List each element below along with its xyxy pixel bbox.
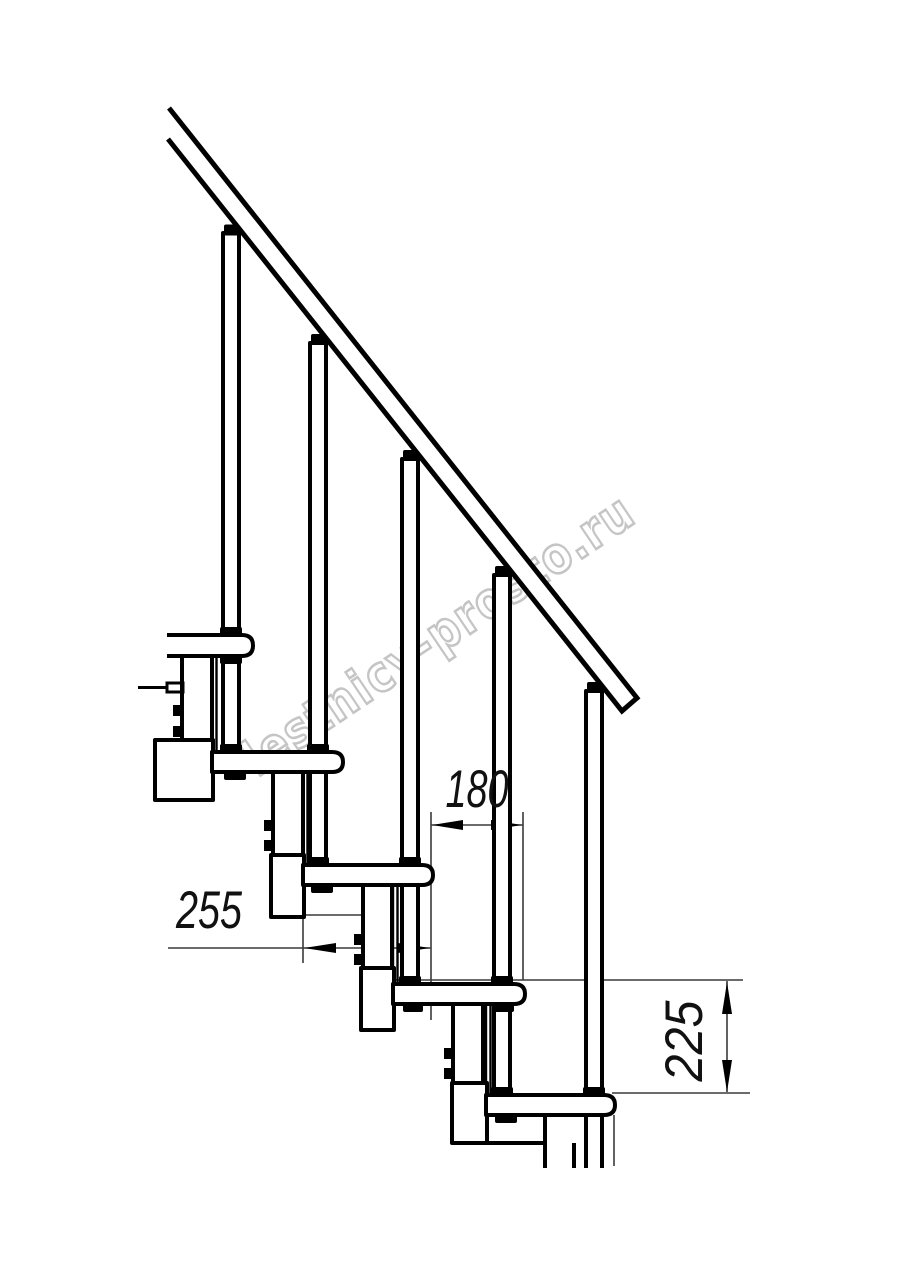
tab-1b (173, 726, 182, 737)
dimension-labels: 180 255 225 (175, 760, 714, 1082)
module-column-3 (363, 885, 392, 968)
baluster-foot (307, 857, 329, 865)
module-column-4 (453, 1004, 483, 1083)
baluster-foot (399, 976, 421, 984)
tread-1 (167, 635, 253, 656)
module-column-1 (182, 656, 212, 740)
tread-3 (303, 865, 433, 885)
tab-4a (444, 1048, 453, 1059)
tab-2a (264, 820, 273, 831)
module-column-5-cut (545, 1143, 574, 1168)
baluster-rod-2 (310, 343, 326, 752)
tread-nut (403, 1004, 423, 1012)
tread-nut (220, 656, 242, 664)
tread-2 (212, 752, 343, 772)
module-sleeve-3 (361, 968, 394, 1030)
dim-label-225: 225 (655, 1000, 714, 1082)
baluster-foot (220, 627, 242, 635)
arrow-180-left (432, 820, 463, 830)
baluster-foot (399, 857, 421, 865)
tread-nut (495, 1115, 517, 1123)
baluster-rod-5 (586, 691, 602, 1095)
module-sleeve-4 (452, 1083, 487, 1143)
baluster-rod-1 (223, 233, 239, 635)
baluster-foot (220, 744, 242, 752)
module-sleeve-1 (155, 740, 213, 800)
baluster-foot (491, 1087, 513, 1095)
tab-2b (264, 840, 273, 851)
stair-drawing: lestnicy-prosto.ru (0, 0, 914, 1280)
stair-drawing-canvas: lestnicy-prosto.ru (0, 0, 914, 1280)
dim-label-255: 255 (175, 881, 242, 940)
rod-below-tread-4 (494, 1004, 510, 1095)
rod-below-tread-1 (223, 656, 239, 752)
tread-nut (224, 772, 246, 780)
dim-label-180: 180 (446, 760, 509, 819)
tab-3a (354, 934, 363, 945)
tread-nut (494, 1004, 514, 1012)
rod-below-tread-3 (402, 885, 418, 984)
tread-nut (311, 885, 333, 893)
tread-4 (393, 984, 525, 1004)
module-column-2 (273, 772, 303, 855)
baluster-foot (307, 744, 329, 752)
arrow-225-up (722, 982, 732, 1014)
rod-below-tread-2 (310, 772, 326, 865)
module-sleeve-2 (271, 855, 304, 917)
rod-below-tread-5-cut (586, 1115, 602, 1168)
tab-4b (444, 1068, 453, 1079)
baluster-foot (583, 1087, 605, 1095)
baluster-rod-3 (402, 459, 418, 865)
tab-3b (354, 954, 363, 965)
baluster-foot (491, 976, 513, 984)
arrow-255-left (304, 943, 336, 953)
arrow-225-down (722, 1060, 732, 1092)
tab-1a (173, 705, 182, 716)
tread-5 (486, 1095, 615, 1115)
